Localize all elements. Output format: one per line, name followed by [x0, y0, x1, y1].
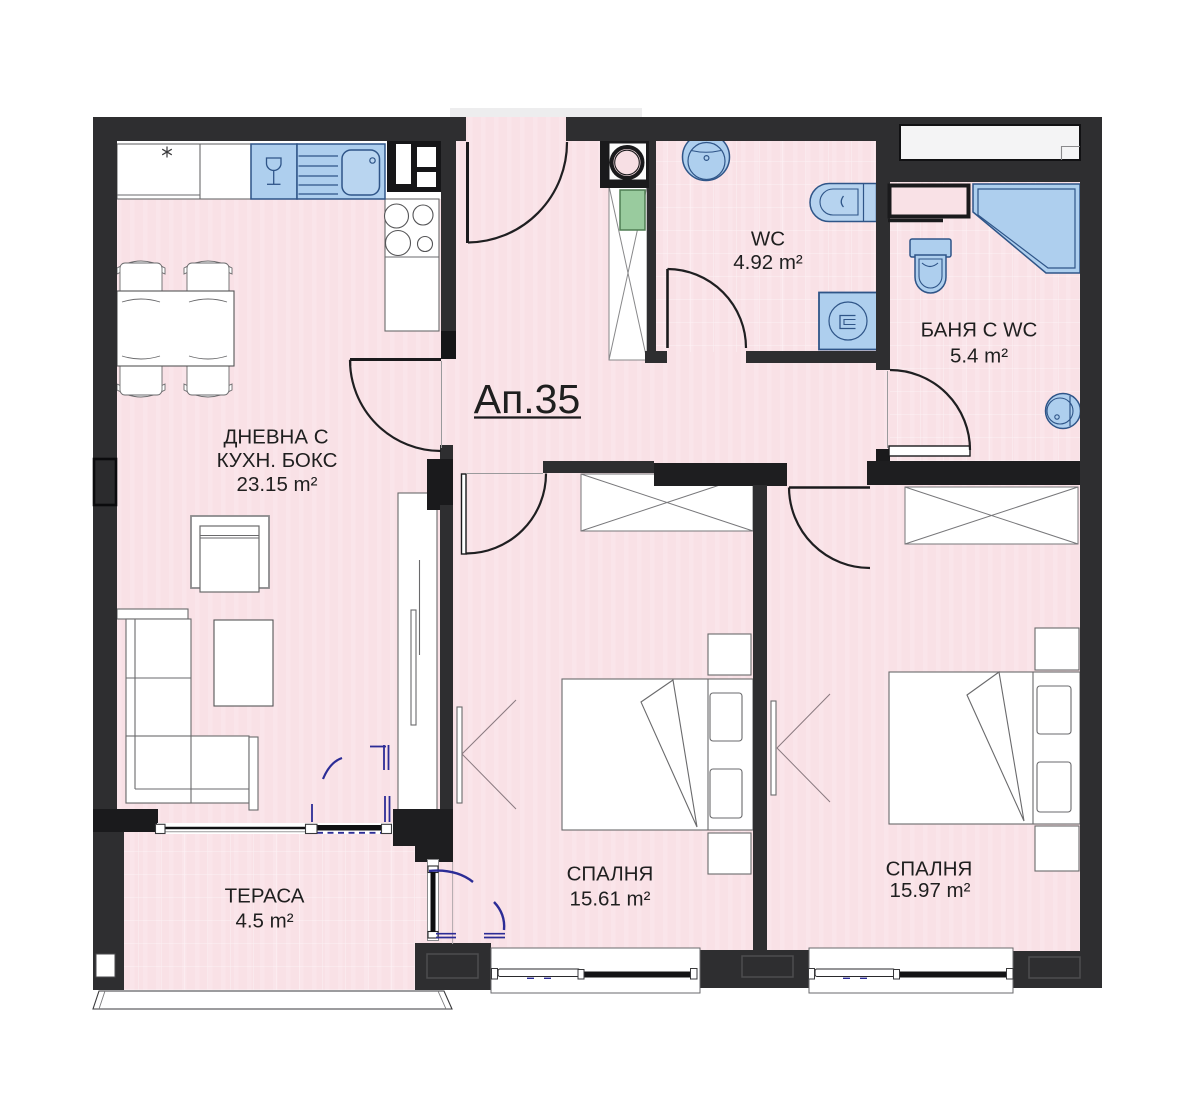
svg-text:Ап.35: Ап.35: [474, 376, 581, 422]
svg-text:СПАЛНЯ: СПАЛНЯ: [886, 858, 973, 881]
svg-text:15.97 m²: 15.97 m²: [890, 879, 971, 902]
svg-text:WC: WC: [751, 228, 785, 251]
svg-text:ДНЕВНА С: ДНЕВНА С: [223, 426, 328, 449]
svg-text:ТЕРАСА: ТЕРАСА: [225, 885, 305, 908]
svg-text:СПАЛНЯ: СПАЛНЯ: [567, 863, 654, 886]
svg-text:4.92 m²: 4.92 m²: [733, 251, 803, 274]
svg-text:23.15 m²: 23.15 m²: [237, 473, 318, 496]
svg-text:5.4 m²: 5.4 m²: [950, 345, 1008, 368]
svg-text:15.61 m²: 15.61 m²: [570, 888, 651, 911]
svg-text:БАНЯ С WC: БАНЯ С WC: [921, 319, 1038, 342]
svg-text:КУХН. БОКС: КУХН. БОКС: [217, 449, 338, 472]
svg-text:4.5 m²: 4.5 m²: [235, 910, 293, 933]
